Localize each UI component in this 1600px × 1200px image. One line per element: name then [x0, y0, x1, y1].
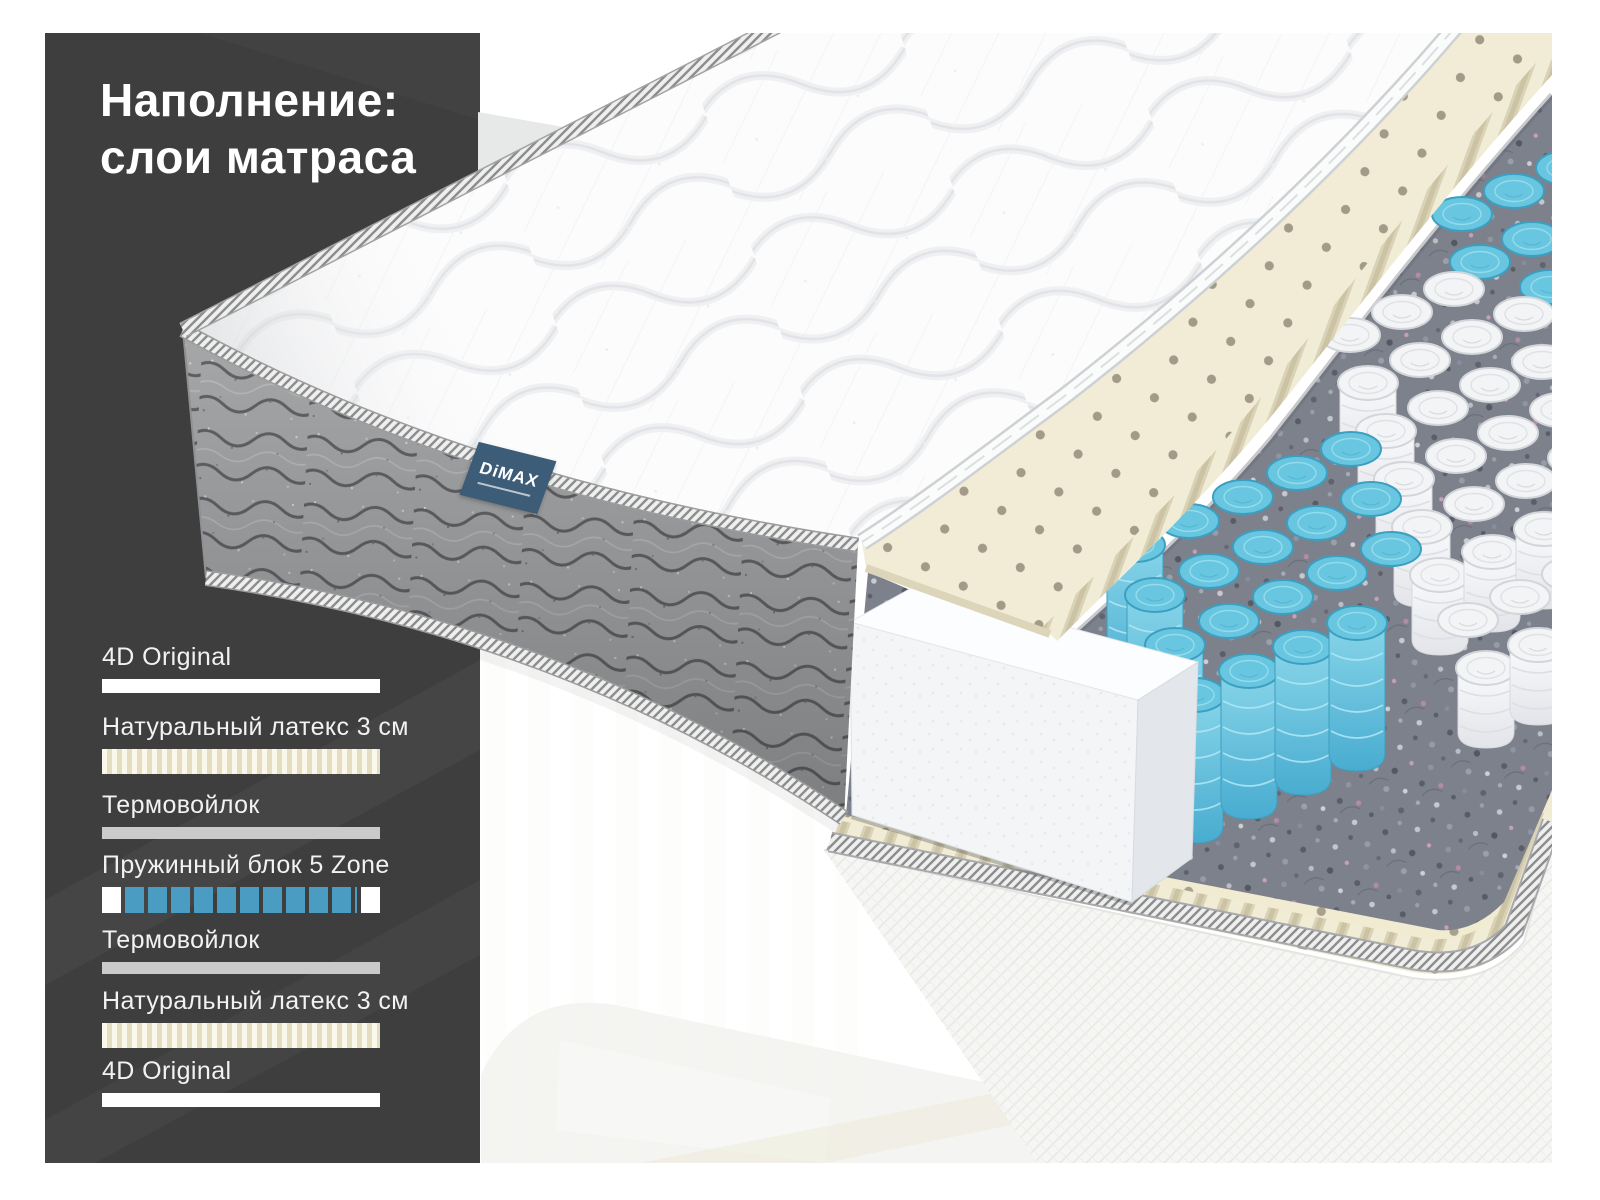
- page-title: Наполнение: слои матраса: [100, 72, 416, 186]
- brand-tag-label: DiMAX: [477, 458, 542, 491]
- title-line-1: Наполнение:: [100, 72, 416, 129]
- infographic-page: Наполнение: слои матраса 4D OriginalНату…: [0, 0, 1600, 1200]
- title-line-2: слои матраса: [100, 129, 416, 186]
